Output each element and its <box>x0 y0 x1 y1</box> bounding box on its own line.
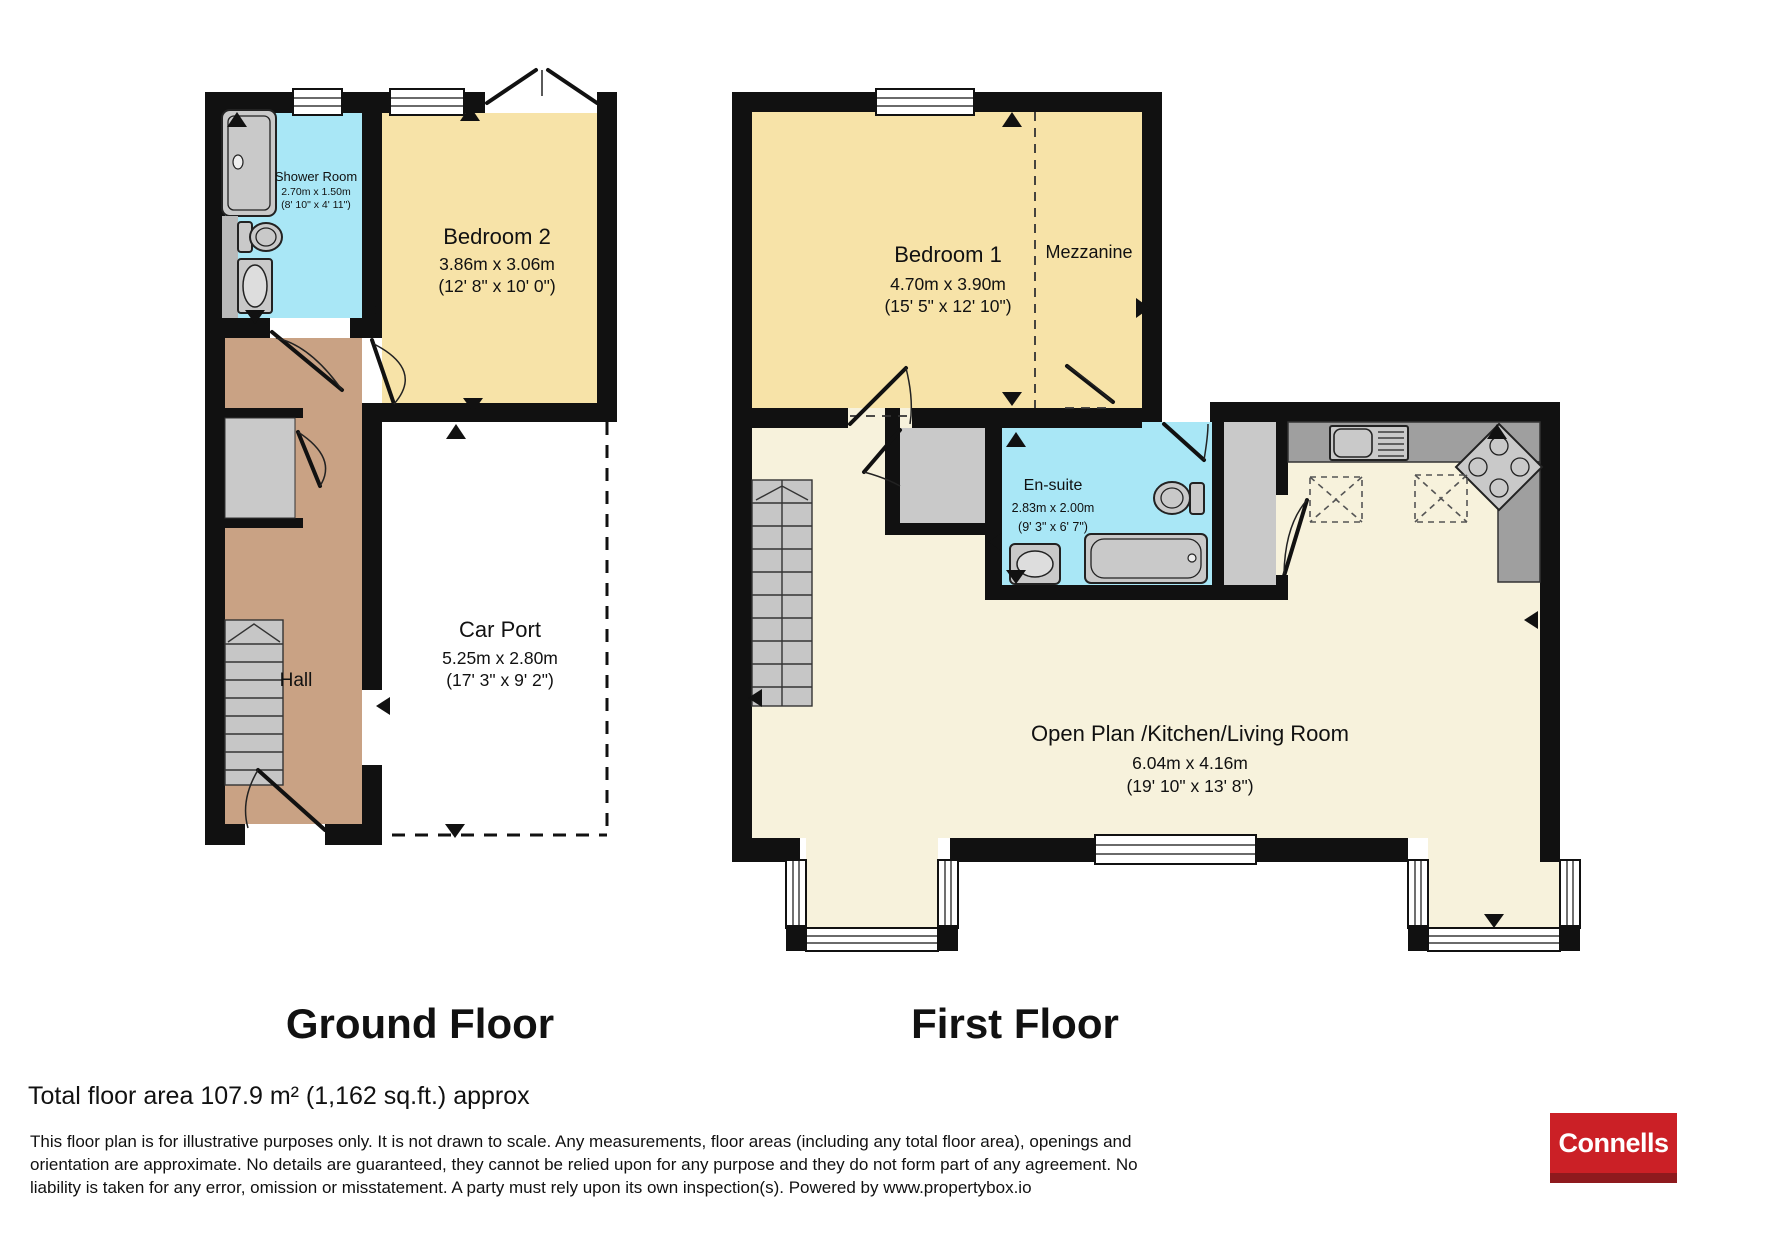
window <box>390 89 464 115</box>
floorplan-page: Shower Room 2.70m x 1.50m (8' 10" x 4' 1… <box>0 0 1771 1240</box>
toilet-fixture <box>238 222 282 252</box>
disclaimer-line: orientation are approximate. No details … <box>30 1153 1138 1176</box>
bay-window-front <box>806 928 938 951</box>
ground-floor-plan: Shower Room 2.70m x 1.50m (8' 10" x 4' 1… <box>205 70 617 1047</box>
room-dim-imperial: (12' 8" x 10' 0") <box>438 276 555 296</box>
room-label: Mezzanine <box>1045 242 1132 262</box>
room-dim-imperial: (19' 10" x 13' 8") <box>1126 776 1253 796</box>
room-dim-imperial: (15' 5" x 12' 10") <box>884 296 1011 316</box>
room-label: Hall <box>280 670 313 691</box>
room-dim-metric: 3.86m x 3.06m <box>439 254 555 274</box>
room-dim-metric: 4.70m x 3.90m <box>890 274 1006 294</box>
floor-title-ground: Ground Floor <box>286 1000 554 1047</box>
toilet-fixture <box>1154 482 1204 514</box>
disclaimer: This floor plan is for illustrative purp… <box>30 1130 1138 1199</box>
window <box>876 89 974 115</box>
bay-window-side <box>1408 860 1428 928</box>
cupboard <box>900 428 985 523</box>
floor-plan-canvas: Shower Room 2.70m x 1.50m (8' 10" x 4' 1… <box>0 0 1771 1240</box>
room-dim-metric: 5.25m x 2.80m <box>442 648 558 668</box>
bay-window-side <box>786 860 806 928</box>
bathroom-wall-unit <box>222 216 238 318</box>
connells-logo: Connells <box>1550 1113 1677 1183</box>
disclaimer-line: liability is taken for any error, omissi… <box>30 1176 1138 1199</box>
french-doors <box>485 70 597 113</box>
room-dim-metric: 6.04m x 4.16m <box>1132 753 1248 773</box>
room-dim-imperial: (9' 3" x 6' 7") <box>1018 520 1088 534</box>
room-dim-metric: 2.70m x 1.50m <box>281 186 351 198</box>
total-floor-area: Total floor area 107.9 m² (1,162 sq.ft.)… <box>28 1082 530 1111</box>
connells-logo-text: Connells <box>1558 1128 1668 1159</box>
disclaimer-line: This floor plan is for illustrative purp… <box>30 1130 1138 1153</box>
staircase <box>225 620 283 785</box>
room-dim-imperial: (17' 3" x 9' 2") <box>446 670 554 690</box>
room-label: Bedroom 2 <box>443 224 551 249</box>
window <box>1095 835 1256 864</box>
room-dim-imperial: (8' 10" x 4' 11") <box>281 199 351 211</box>
window <box>293 89 342 115</box>
room-label: Open Plan /Kitchen/Living Room <box>1031 721 1349 746</box>
staircase <box>752 480 812 706</box>
room-label: Car Port <box>459 617 541 642</box>
floor-title-first: First Floor <box>911 1000 1119 1047</box>
bay-window-floor <box>806 838 938 928</box>
sink-fixture <box>238 259 272 313</box>
room-dim-metric: 2.83m x 2.00m <box>1012 501 1095 515</box>
bay-window-side <box>1560 860 1580 928</box>
bay-window-front <box>1428 928 1560 951</box>
kitchen-sink-fixture <box>1330 426 1408 460</box>
cupboard <box>1224 422 1276 585</box>
connells-logo-box: Connells <box>1550 1113 1677 1173</box>
room-label: Bedroom 1 <box>894 242 1002 267</box>
first-floor-plan: Bedroom 1 4.70m x 3.90m (15' 5" x 12' 10… <box>732 89 1580 1047</box>
bathtub-fixture <box>1085 534 1207 583</box>
bay-window-side <box>938 860 958 928</box>
room-label: En-suite <box>1024 477 1083 494</box>
connells-logo-strip <box>1550 1173 1677 1183</box>
room-label: Shower Room <box>275 169 357 184</box>
